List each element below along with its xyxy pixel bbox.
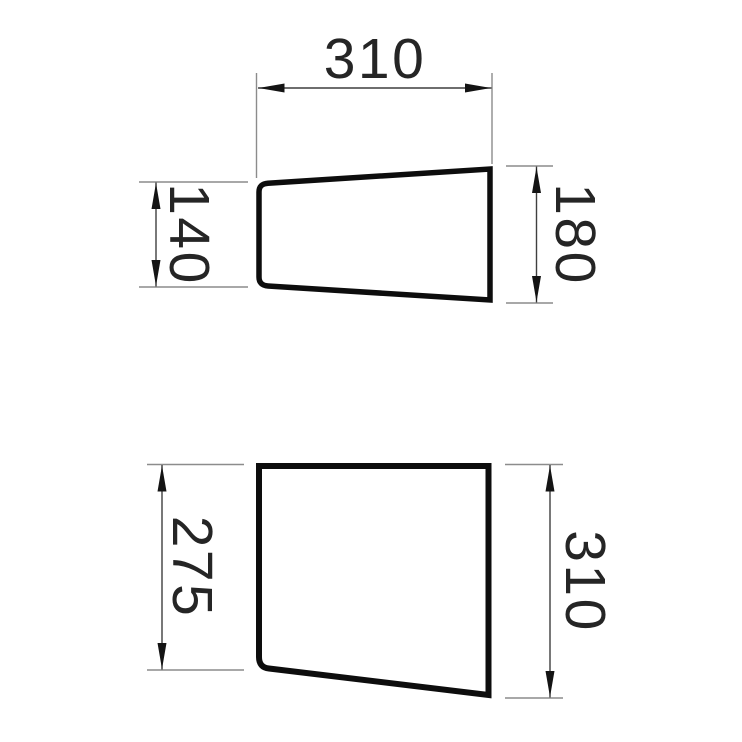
lower-profile-outline [259,466,489,695]
upper-view: 310 140 180 [139,27,607,303]
arrow-left-icon [259,84,285,93]
arrow-down-icon [158,643,167,669]
drawing-svg: 310 140 180 [0,0,742,742]
dim-label-left-height: 140 [157,183,221,286]
dim-label-top-width: 310 [324,27,427,91]
lower-view: 275 310 [147,465,617,699]
arrow-up-icon [532,167,541,193]
technical-drawing-canvas: 310 140 180 [0,0,742,742]
arrow-down-icon [532,276,541,302]
dim-label-left-height: 275 [160,516,224,619]
arrow-right-icon [465,84,491,93]
upper-profile-outline [259,169,490,300]
arrow-up-icon [158,466,167,492]
arrow-down-icon [546,671,555,697]
arrow-up-icon [546,466,555,492]
dim-label-right-height: 180 [543,183,607,286]
dim-label-right-height: 310 [553,530,617,633]
